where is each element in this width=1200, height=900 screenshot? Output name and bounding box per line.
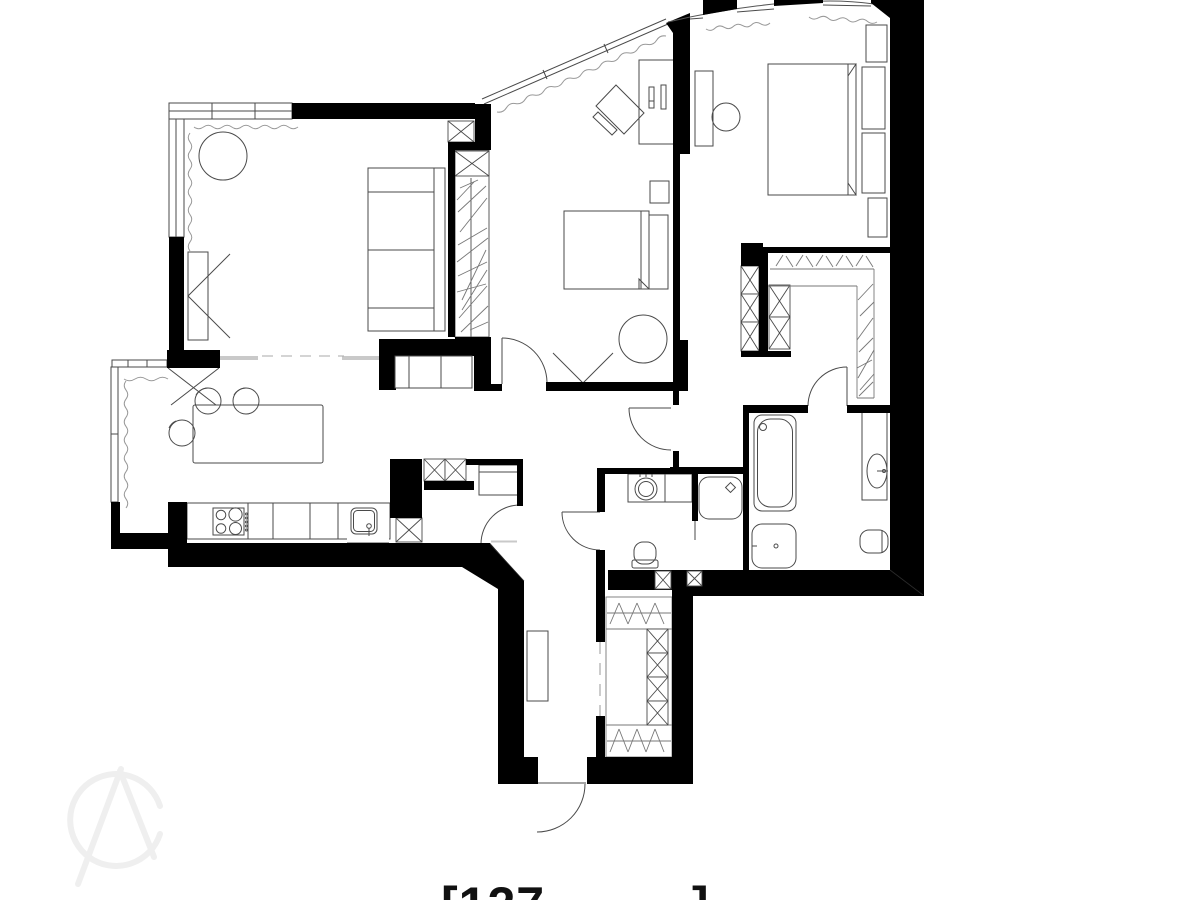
svg-text:[127: [127 <box>441 877 545 900</box>
svg-text:]: ] <box>692 877 709 900</box>
